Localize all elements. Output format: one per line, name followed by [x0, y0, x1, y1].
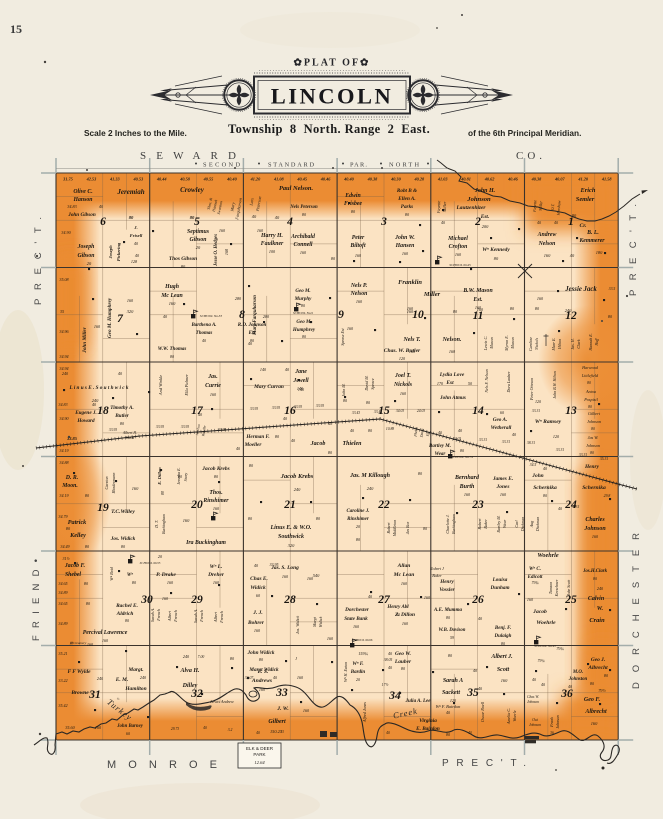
- svg-text:41.33: 41.33: [109, 177, 121, 182]
- svg-text:John H.: John H.: [474, 188, 496, 194]
- svg-text:Thomas: Thomas: [196, 331, 213, 336]
- svg-text:Hugh: Hugh: [164, 284, 179, 290]
- svg-text:Aldrich: Aldrich: [116, 611, 134, 617]
- svg-text:36: 36: [560, 688, 573, 700]
- svg-text:40: 40: [537, 221, 541, 225]
- svg-text:Charlotte J.: Charlotte J.: [445, 514, 450, 533]
- svg-text:Carl: Carl: [514, 519, 519, 527]
- svg-text:20: 20: [190, 499, 203, 511]
- svg-text:Woehrle: Woehrle: [537, 552, 558, 559]
- svg-text:Geo M.: Geo M.: [296, 320, 311, 325]
- svg-text:160: 160: [219, 228, 226, 233]
- svg-text:Thielen: Thielen: [343, 441, 363, 447]
- svg-text:Lauber: Lauber: [394, 659, 412, 665]
- svg-text:22: 22: [377, 499, 390, 511]
- svg-text:23: 23: [471, 499, 484, 511]
- svg-text:Jos. Widick: Jos. Widick: [110, 536, 136, 542]
- svg-text:35.31: 35.31: [600, 457, 608, 461]
- svg-text:36: 36: [550, 731, 554, 735]
- svg-text:Wetherall: Wetherall: [491, 425, 512, 431]
- svg-text:40.44: 40.44: [156, 177, 168, 182]
- svg-text:34.65: 34.65: [58, 581, 67, 586]
- svg-text:Louisa: Louisa: [492, 577, 508, 583]
- svg-text:34.88: 34.88: [59, 460, 68, 465]
- svg-text:26: 26: [471, 594, 484, 606]
- svg-text:33.93: 33.93: [272, 406, 280, 410]
- svg-text:160: 160: [183, 518, 190, 523]
- svg-text:160: 160: [449, 349, 456, 354]
- svg-text:Wⁿ Reid: Wⁿ Reid: [109, 566, 114, 580]
- svg-text:B.W. Mason: B.W. Mason: [462, 288, 492, 294]
- svg-text:40: 40: [568, 684, 572, 689]
- svg-text:40.30: 40.30: [390, 177, 402, 182]
- svg-text:SCHOOL No.33: SCHOOL No.33: [200, 314, 222, 318]
- svg-text:34.19: 34.19: [59, 448, 68, 453]
- svg-text:Nels F. Nelson: Nels F. Nelson: [484, 369, 489, 393]
- svg-text:29.73: 29.73: [171, 727, 179, 731]
- svg-text:Julia A. Lee: Julia A. Lee: [405, 699, 432, 704]
- svg-text:Gibson: Gibson: [77, 253, 94, 259]
- svg-text:40.53: 40.53: [132, 177, 144, 182]
- svg-text:Johnston: Johnston: [568, 677, 588, 682]
- svg-text:Paul Nelson.: Paul Nelson.: [279, 185, 313, 192]
- svg-text:34.83: 34.83: [58, 402, 67, 407]
- svg-text:Sarah A.: Sarah A.: [193, 609, 198, 623]
- svg-text:D. R.: D. R.: [65, 475, 78, 481]
- svg-text:320: 320: [288, 543, 295, 548]
- svg-text:Geo M.: Geo M.: [295, 289, 310, 294]
- svg-text:59: 59: [450, 635, 454, 640]
- svg-text:Sarah A.: Sarah A.: [150, 608, 155, 622]
- svg-text:Wⁿ H. Eaton: Wⁿ H. Eaton: [343, 662, 348, 682]
- svg-text:40.07: 40.07: [554, 177, 566, 182]
- svg-text:Nels T.: Nels T.: [402, 337, 421, 343]
- svg-text:French: French: [199, 610, 204, 622]
- svg-text:Andrew: Andrew: [537, 232, 557, 238]
- svg-text:Dora Lauber: Dora Lauber: [506, 371, 511, 393]
- svg-text:Tamson: Tamson: [548, 582, 553, 594]
- svg-text:Lewis Andrew: Lewis Andrew: [209, 699, 234, 704]
- svg-text:40: 40: [236, 446, 240, 451]
- svg-text:E. M.: E. M.: [115, 677, 128, 683]
- svg-text:40: 40: [350, 428, 354, 433]
- svg-text:33.93: 33.93: [250, 407, 258, 411]
- svg-text:80: 80: [125, 618, 129, 623]
- svg-text:Wⁿ L.: Wⁿ L.: [210, 564, 223, 570]
- svg-text:Hanson: Hanson: [72, 197, 92, 203]
- svg-text:160: 160: [401, 581, 408, 586]
- svg-text:60: 60: [126, 731, 130, 736]
- svg-text:Miller: Miller: [442, 201, 447, 213]
- svg-text:Harwood: Harwood: [581, 365, 599, 370]
- svg-text:Joel T.: Joel T.: [394, 373, 411, 379]
- svg-text:38.05: 38.05: [384, 658, 393, 662]
- svg-text:John Gibson: John Gibson: [67, 212, 96, 218]
- svg-text:Ira Buckingham: Ira Buckingham: [185, 540, 226, 546]
- svg-text:160: 160: [409, 349, 416, 354]
- svg-text:160: 160: [102, 638, 109, 643]
- svg-text:P. Drake: P. Drake: [156, 572, 176, 578]
- svg-text:Johnson: Johnson: [586, 443, 600, 448]
- svg-text:33.07: 33.07: [245, 676, 255, 680]
- svg-text:Jacob F.: Jacob F.: [64, 563, 85, 569]
- svg-text:Dickman: Dickman: [520, 517, 525, 532]
- svg-text:Andrews: Andrews: [251, 678, 272, 684]
- svg-text:Linus E. & W.O.: Linus E. & W.O.: [269, 525, 312, 531]
- svg-text:160: 160: [259, 687, 266, 692]
- svg-text:40: 40: [558, 506, 562, 511]
- svg-text:Herman F.: Herman F.: [245, 434, 269, 440]
- svg-text:Chas E.: Chas E.: [250, 576, 268, 582]
- svg-text:Henry: Henry: [584, 464, 600, 470]
- svg-text:Murphy: Murphy: [294, 297, 312, 302]
- svg-text:80: 80: [396, 612, 400, 617]
- svg-text:120: 120: [450, 698, 457, 703]
- svg-text:180: 180: [596, 250, 603, 255]
- svg-text:35.08: 35.08: [59, 277, 68, 282]
- svg-text:160: 160: [355, 253, 362, 258]
- svg-text:Story: Story: [183, 473, 188, 482]
- svg-text:Frank: Frank: [549, 717, 554, 728]
- svg-text:Middleton: Middleton: [392, 520, 397, 537]
- svg-text:Nels Peterson: Nels Peterson: [289, 205, 318, 210]
- svg-text:160: 160: [464, 492, 471, 497]
- svg-text:33.31: 33.31: [502, 440, 510, 444]
- svg-text:Schernika: Schernika: [533, 485, 557, 491]
- svg-text:80: 80: [160, 491, 165, 495]
- svg-text:80: 80: [423, 526, 427, 531]
- svg-text:Jane: Jane: [294, 369, 307, 375]
- svg-text:John Barney: John Barney: [116, 724, 144, 729]
- svg-text:34.94: 34.94: [59, 354, 68, 359]
- svg-text:128: 128: [131, 259, 138, 264]
- svg-text:80: 80: [460, 448, 464, 453]
- svg-text:Widick: Widick: [318, 616, 323, 627]
- svg-text:Nelson: Nelson: [350, 291, 368, 297]
- svg-text:Albert: Albert: [213, 611, 218, 623]
- svg-text:Jas. M Killough: Jas. M Killough: [349, 473, 391, 479]
- svg-text:Schernika: Schernika: [582, 485, 606, 491]
- svg-text:Hilton: Hilton: [557, 339, 562, 350]
- svg-text:34.90: 34.90: [61, 230, 71, 235]
- svg-text:Septimus: Septimus: [187, 229, 210, 235]
- svg-text:SCHOOL No45: SCHOOL No45: [449, 263, 471, 267]
- svg-text:40.45: 40.45: [296, 177, 308, 182]
- svg-text:Jones: Jones: [496, 484, 510, 490]
- svg-text:Cr.: Cr.: [580, 223, 587, 229]
- svg-text:Albert H.: Albert H.: [122, 431, 137, 435]
- svg-text:Jacob: Jacob: [532, 609, 547, 615]
- svg-text:160: 160: [95, 725, 102, 730]
- svg-text:E. Dillon: E. Dillon: [157, 467, 162, 486]
- svg-text:Wear: Wear: [435, 452, 446, 457]
- svg-text:John M.: John M.: [341, 383, 346, 396]
- svg-text:Biltoft: Biltoft: [349, 243, 366, 249]
- svg-text:Jobe Scott: Jobe Scott: [566, 579, 571, 596]
- svg-text:79¼: 79¼: [538, 658, 545, 663]
- svg-text:160: 160: [500, 492, 507, 497]
- svg-text:James E.: James E.: [492, 476, 513, 482]
- svg-text:Rinshimer: Rinshimer: [202, 498, 229, 504]
- svg-text:12.64: 12.64: [254, 760, 265, 765]
- svg-text:160: 160: [210, 392, 217, 397]
- svg-text:Mary Curran: Mary Curran: [253, 384, 284, 390]
- svg-text:159¾: 159¾: [358, 651, 368, 656]
- svg-text:Jas Box: Jas Box: [405, 522, 410, 535]
- svg-text:Percival Lawrence: Percival Lawrence: [83, 630, 128, 636]
- svg-text:Alva H.: Alva H.: [180, 668, 200, 674]
- svg-text:Timothy A.: Timothy A.: [110, 405, 134, 411]
- svg-text:160: 160: [592, 534, 599, 539]
- svg-text:34.90: 34.90: [59, 416, 68, 421]
- svg-text:33.5: 33.5: [609, 287, 616, 291]
- svg-text:40: 40: [202, 338, 206, 343]
- svg-text:Gibson: Gibson: [189, 237, 206, 243]
- svg-text:20: 20: [356, 677, 360, 682]
- svg-text:Thos Gibson: Thos Gibson: [169, 256, 197, 262]
- svg-text:M.O.: M.O.: [572, 670, 583, 675]
- svg-text:SEWARD: SEWARD: [140, 150, 236, 162]
- svg-text:6: 6: [100, 216, 106, 228]
- svg-text:Burth: Burth: [459, 484, 475, 490]
- svg-text:Joseph: Joseph: [77, 244, 95, 250]
- svg-text:80: 80: [190, 215, 195, 220]
- svg-text:40: 40: [368, 594, 372, 599]
- svg-text:Widick: Widick: [250, 585, 266, 591]
- svg-text:Albrecht: Albrecht: [587, 665, 608, 671]
- svg-text:280: 280: [263, 314, 270, 319]
- svg-text:Albert J.: Albert J.: [490, 654, 513, 660]
- svg-text:160: 160: [544, 253, 551, 258]
- svg-text:Antoa: Antoa: [585, 389, 596, 394]
- svg-text:80: 80: [129, 215, 134, 220]
- svg-text:Robert: Robert: [386, 522, 391, 535]
- svg-text:Jos. Widick: Jos. Widick: [295, 616, 300, 634]
- svg-text:160: 160: [132, 486, 139, 491]
- svg-text:40: 40: [388, 651, 392, 656]
- svg-text:40: 40: [541, 682, 545, 687]
- svg-text:34.49: 34.49: [60, 544, 69, 549]
- svg-text:Marr E.: Marr E.: [551, 338, 556, 352]
- svg-text:Pickering: Pickering: [116, 242, 121, 261]
- svg-text:240: 240: [565, 308, 572, 313]
- svg-text:160: 160: [402, 621, 409, 626]
- svg-text:33.43: 33.43: [352, 411, 360, 415]
- svg-text:David M.: David M.: [364, 375, 369, 391]
- svg-text:41.03: 41.03: [437, 177, 449, 182]
- svg-text:Dunham: Dunham: [489, 585, 509, 591]
- svg-text:John Widick: John Widick: [247, 650, 275, 656]
- svg-text:D. T.: D. T.: [154, 520, 159, 529]
- svg-text:3: 3: [380, 216, 387, 228]
- svg-text:34.5: 34.5: [530, 463, 537, 467]
- svg-text:Connell: Connell: [293, 242, 312, 248]
- svg-text:40: 40: [554, 221, 558, 225]
- svg-text:Wⁿ Kennedy: Wⁿ Kennedy: [482, 247, 510, 253]
- svg-text:Kerschner: Kerschner: [554, 579, 559, 597]
- svg-text:W.W. Thomas: W.W. Thomas: [158, 347, 187, 352]
- svg-text:160: 160: [300, 250, 307, 255]
- svg-text:Margt Widick: Margt Widick: [248, 667, 279, 673]
- svg-text:½: ½: [117, 697, 120, 701]
- svg-text:F F Wylde: F F Wylde: [67, 669, 91, 675]
- svg-text:9: 9: [338, 309, 344, 321]
- svg-text:Southwick: Southwick: [278, 534, 304, 540]
- svg-text:160: 160: [353, 624, 359, 629]
- svg-text:29: 29: [190, 594, 203, 606]
- svg-text:Bernhard: Bernhard: [454, 475, 480, 481]
- svg-text:35: 35: [60, 309, 64, 314]
- svg-text:Archibald: Archibald: [290, 234, 315, 240]
- svg-text:34.89: 34.89: [58, 621, 67, 626]
- svg-text:Wⁿ Ramsey: Wⁿ Ramsey: [535, 419, 562, 425]
- svg-text:B. L.: B. L.: [586, 230, 599, 236]
- svg-text:Erich: Erich: [580, 187, 596, 194]
- svg-text:160: 160: [213, 506, 220, 511]
- svg-text:35.21: 35.21: [58, 651, 67, 656]
- svg-text:Dulaigh: Dulaigh: [494, 634, 512, 639]
- svg-text:Johnson: Johnson: [529, 723, 541, 727]
- svg-text:Buckingham: Buckingham: [451, 514, 456, 534]
- svg-text:Mc Lean: Mc Lean: [160, 293, 182, 299]
- svg-text:Wⁿ: Wⁿ: [127, 573, 133, 578]
- svg-text:40.46: 40.46: [507, 177, 519, 182]
- svg-text:J.: J.: [133, 225, 137, 230]
- svg-text:Littlefield: Littlefield: [581, 373, 599, 378]
- svg-text:Virginia: Virginia: [419, 718, 437, 724]
- svg-text:STANDARD: STANDARD: [268, 162, 314, 169]
- svg-text:Hamilton: Hamilton: [124, 686, 146, 692]
- svg-text:40: 40: [256, 731, 260, 735]
- svg-text:160: 160: [400, 391, 407, 396]
- svg-text:Huff: Huff: [594, 338, 599, 347]
- svg-text:Moon.: Moon.: [61, 483, 78, 489]
- svg-text:120: 120: [535, 399, 541, 404]
- svg-text:120: 120: [553, 434, 560, 439]
- svg-text:14: 14: [472, 405, 484, 417]
- svg-text:PREC'T.: PREC'T.: [628, 204, 639, 296]
- svg-text:280: 280: [235, 296, 242, 301]
- svg-text:Jas W.: Jas W.: [588, 435, 599, 440]
- svg-text:Geo J.: Geo J.: [591, 657, 605, 663]
- svg-text:30: 30: [140, 594, 153, 606]
- svg-text:Alfred Jones: Alfred Jones: [362, 702, 367, 723]
- svg-text:Kemmerer: Kemmerer: [578, 238, 605, 244]
- svg-text:33.22: 33.22: [58, 678, 67, 683]
- svg-text:31½: 31½: [63, 556, 70, 561]
- svg-text:A.E. Mumma: A.E. Mumma: [433, 608, 462, 613]
- svg-text:Clark: Clark: [576, 339, 581, 348]
- svg-text:PREC'T.: PREC'T.: [33, 217, 44, 305]
- svg-text:Jacob Krebs: Jacob Krebs: [280, 473, 314, 480]
- svg-text:Mary Farquharson: Mary Farquharson: [253, 295, 258, 336]
- svg-text:40: 40: [468, 731, 472, 735]
- svg-text:40: 40: [446, 710, 450, 715]
- svg-text:Rinshimer: Rinshimer: [347, 517, 369, 522]
- svg-text:Wood: Wood: [126, 436, 135, 440]
- svg-text:34.89: 34.89: [58, 590, 67, 595]
- svg-text:10: 10: [412, 309, 424, 321]
- svg-text:40.46: 40.46: [320, 177, 332, 182]
- svg-text:Nels P.: Nels P.: [350, 283, 367, 289]
- svg-text:33.31: 33.31: [532, 409, 540, 413]
- svg-text:Johnson: Johnson: [583, 526, 606, 532]
- svg-text:33.93: 33.93: [181, 425, 189, 429]
- svg-text:SCHOOL No96: SCHOOL No96: [352, 638, 373, 642]
- svg-text:40.58: 40.58: [179, 177, 191, 182]
- svg-text:Woehrle: Woehrle: [536, 620, 556, 626]
- svg-text:40.28: 40.28: [413, 177, 425, 182]
- svg-text:Bartley M.: Bartley M.: [428, 444, 451, 449]
- svg-text:Geo W.: Geo W.: [395, 651, 411, 657]
- svg-text:Johnson: Johnson: [527, 700, 539, 704]
- svg-text:Sackett: Sackett: [442, 690, 460, 696]
- svg-text:40.55: 40.55: [203, 177, 215, 182]
- svg-text:Frisell: Frisell: [130, 233, 143, 238]
- svg-text:Dilley: Dilley: [182, 683, 198, 689]
- svg-text:Wⁿ F. Bairdon: Wⁿ F. Bairdon: [436, 704, 461, 709]
- svg-text:Jeremiah: Jeremiah: [116, 188, 144, 196]
- svg-text:33: 33: [275, 687, 288, 699]
- svg-text:240: 240: [367, 486, 374, 491]
- svg-text:5: 5: [194, 216, 200, 228]
- svg-text:DORCHESTER: DORCHESTER: [631, 533, 642, 689]
- svg-text:Pospisil: Pospisil: [583, 397, 598, 402]
- svg-text:40: 40: [92, 402, 96, 407]
- svg-text:160: 160: [303, 708, 310, 713]
- svg-text:NORTH: NORTH: [389, 162, 419, 169]
- svg-text:Caroline J.: Caroline J.: [346, 509, 369, 514]
- svg-text:240: 240: [597, 586, 604, 591]
- svg-text:Chas. W. Butler: Chas. W. Butler: [384, 348, 421, 354]
- svg-text:Butler: Butler: [114, 413, 130, 419]
- svg-text:Barthena A.: Barthena A.: [190, 323, 216, 328]
- svg-text:Jas.: Jas.: [207, 374, 218, 380]
- svg-text:Albert: Albert: [167, 610, 172, 622]
- svg-text:Mason: Mason: [489, 337, 494, 349]
- svg-text:Chas W.: Chas W.: [527, 695, 539, 699]
- svg-text:140: 140: [260, 367, 267, 372]
- svg-text:33.85: 33.85: [66, 436, 78, 441]
- svg-text:Ellen A.: Ellen A.: [397, 196, 415, 202]
- svg-text:Mason: Mason: [510, 337, 515, 349]
- svg-text:35.42: 35.42: [58, 703, 67, 708]
- svg-text:Michael: Michael: [447, 236, 468, 242]
- svg-text:34.83: 34.83: [67, 204, 76, 209]
- svg-text:540: 540: [313, 573, 320, 578]
- svg-text:4: 4: [286, 216, 293, 228]
- svg-text:Baker: Baker: [432, 573, 442, 578]
- svg-text:Bartley M.: Bartley M.: [496, 515, 501, 532]
- svg-text:31.75: 31.75: [62, 177, 74, 182]
- svg-text:Johnson: Johnson: [587, 419, 601, 424]
- svg-text:Scott: Scott: [497, 667, 510, 673]
- svg-text:41.20: 41.20: [577, 177, 589, 182]
- svg-text:80: 80: [587, 381, 591, 385]
- svg-text:FRIEND•: FRIEND•: [31, 559, 42, 641]
- svg-text:O.T.: O.T.: [550, 203, 555, 210]
- svg-text:Hannah E.: Hannah E.: [588, 333, 593, 351]
- svg-text:Blindermann: Blindermann: [111, 473, 116, 494]
- svg-text:W.B. Davison: W.B. Davison: [439, 628, 466, 633]
- svg-text:29.5: 29.5: [573, 505, 580, 509]
- svg-text:Crain: Crain: [589, 617, 605, 624]
- svg-text:29.8: 29.8: [604, 494, 611, 498]
- svg-text:40.38: 40.38: [531, 177, 543, 182]
- svg-text:Crofton: Crofton: [449, 244, 468, 250]
- svg-text:▤Creamery: ▤Creamery: [70, 641, 87, 645]
- svg-text:41.08: 41.08: [273, 177, 285, 182]
